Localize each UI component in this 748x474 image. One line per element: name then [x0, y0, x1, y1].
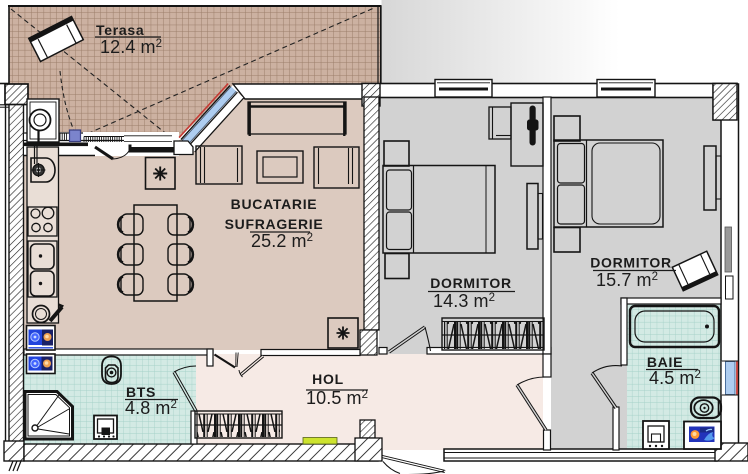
svg-text:15.7 m2: 15.7 m2 [596, 270, 658, 290]
svg-text:4.5 m2: 4.5 m2 [649, 368, 701, 388]
svg-text:25.2 m2: 25.2 m2 [251, 231, 313, 251]
svg-text:4.8 m2: 4.8 m2 [125, 398, 177, 418]
svg-text:SUFRAGERIE: SUFRAGERIE [225, 216, 324, 232]
svg-text:12.4 m2: 12.4 m2 [100, 37, 162, 57]
svg-text:DORMITOR: DORMITOR [430, 275, 512, 291]
svg-text:DORMITOR: DORMITOR [590, 255, 672, 271]
svg-text:Terasa: Terasa [96, 22, 144, 38]
svg-text:14.3 m2: 14.3 m2 [433, 291, 495, 311]
svg-text:BUCATARIE: BUCATARIE [231, 196, 318, 212]
svg-text:HOL: HOL [312, 371, 344, 387]
svg-text:10.5 m2: 10.5 m2 [306, 388, 368, 408]
